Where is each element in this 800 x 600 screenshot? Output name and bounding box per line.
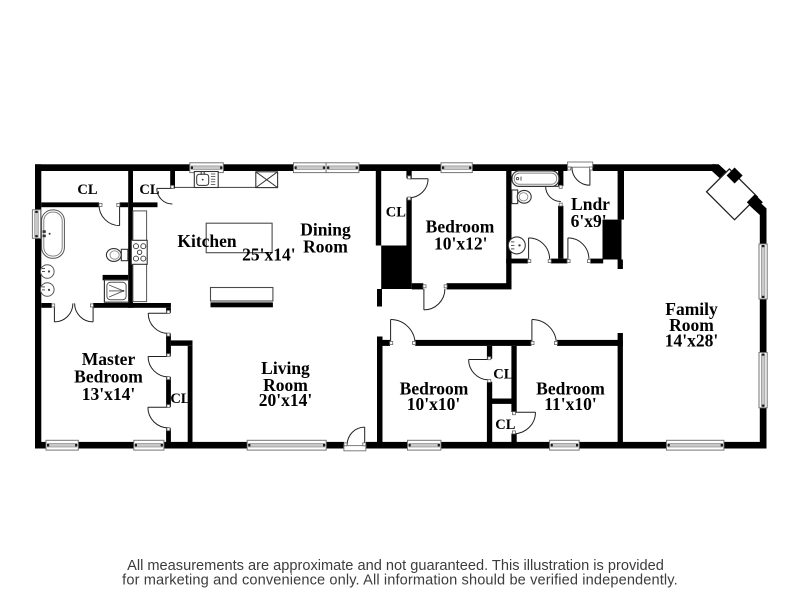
svg-text:for marketing and convenience: for marketing and convenience only. All … xyxy=(122,573,678,589)
svg-text:14'x28': 14'x28' xyxy=(665,331,718,351)
svg-text:6'x9': 6'x9' xyxy=(571,211,607,231)
svg-text:13'x14': 13'x14' xyxy=(82,384,135,404)
svg-text:10'x12': 10'x12' xyxy=(434,234,487,254)
svg-text:CL: CL xyxy=(493,367,513,383)
svg-text:11'x10': 11'x10' xyxy=(544,394,597,414)
svg-text:CL: CL xyxy=(495,417,515,433)
svg-text:10'x10': 10'x10' xyxy=(407,394,460,414)
svg-text:CL: CL xyxy=(170,391,190,407)
svg-text:Kitchen: Kitchen xyxy=(177,231,237,251)
svg-text:20'x14': 20'x14' xyxy=(259,390,312,410)
svg-text:25'x14': 25'x14' xyxy=(242,244,295,264)
svg-text:CL: CL xyxy=(139,182,159,198)
svg-text:CL: CL xyxy=(77,182,97,198)
svg-text:Room: Room xyxy=(303,237,348,257)
svg-text:CL: CL xyxy=(386,204,406,220)
